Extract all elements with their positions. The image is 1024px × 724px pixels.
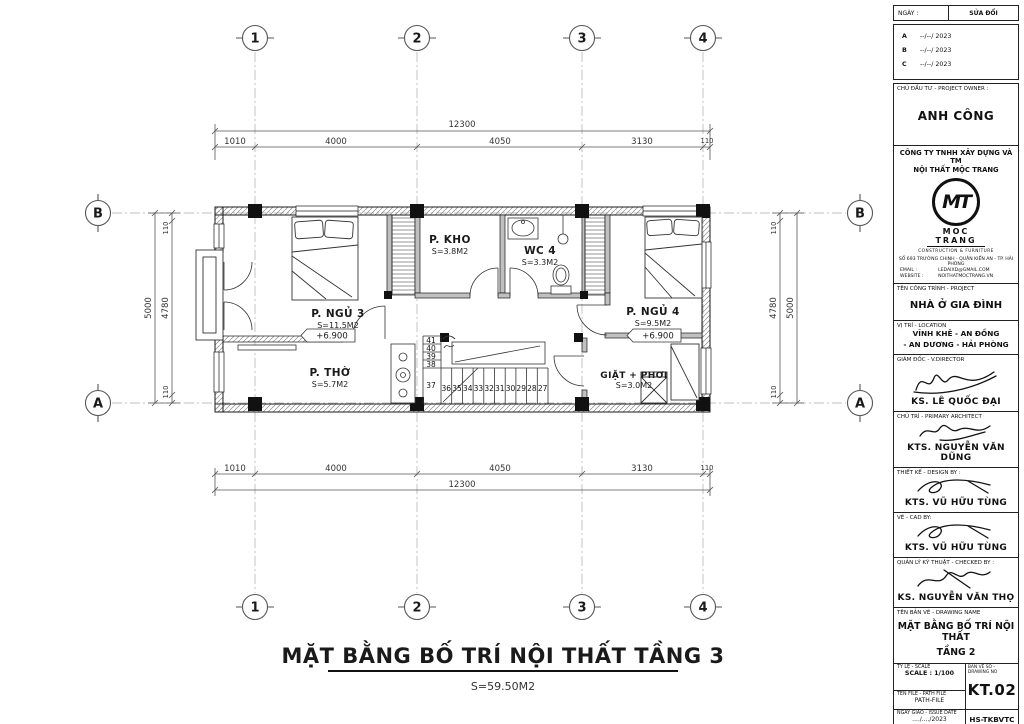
company-logo: MT: [932, 178, 980, 226]
revision-key: B: [902, 47, 910, 54]
dim-label: 110: [770, 386, 778, 399]
revision-change-label: SỬA ĐỔI: [948, 6, 1018, 20]
staircase: [423, 336, 548, 404]
email-label: EMAIL :: [900, 268, 938, 273]
revision-row: B --/--/ 2023: [902, 47, 1010, 54]
stair-number: 30: [506, 384, 516, 393]
room-level-ngu4: +6.900: [642, 332, 673, 342]
dim-label: 1010: [224, 464, 246, 474]
signer-label: THIẾT KẾ - DESIGN BY :: [894, 468, 1018, 477]
stair-number: 31: [495, 384, 505, 393]
grid-bubble-Br: B: [855, 207, 865, 222]
drawing-name-label: TÊN BẢN VẼ - DRAWING NAME: [894, 608, 1018, 617]
room-area-kho: S=3.8M2: [432, 247, 469, 256]
project-label: TÊN CÔNG TRÌNH - PROJECT: [894, 284, 1018, 293]
plan-title-group: MẶT BẰNG BỐ TRÍ NỘI THẤT TẦNG 3 S=59.50M…: [281, 640, 724, 693]
title-block: NGÀY : SỬA ĐỔI A --/--/ 2023 B --/--/ 20…: [893, 6, 1019, 724]
dimension-labels: 12300 1010 4000 4050 3130 110 1010 4000 …: [144, 120, 796, 490]
dim-overall-bottom: 12300: [448, 480, 475, 490]
dim-label: 4780: [769, 297, 779, 319]
website-value: NOITHATMOCTRANG.VN: [938, 274, 993, 279]
signer-checker: QUẢN LÝ KỸ THUẬT - CHECKED BY : KS. NGUY…: [893, 557, 1019, 609]
signer-designer: THIẾT KẾ - DESIGN BY : KTS. VŨ HỮU TÙNG: [893, 467, 1019, 513]
revision-table: A --/--/ 2023 B --/--/ 2023 C --/--/ 202…: [893, 24, 1019, 80]
signature-designer: [906, 477, 1006, 497]
drawing-no-value: KT.02: [966, 681, 1018, 699]
issue-date-value: ..../..../2023: [894, 716, 965, 723]
stair-number: 33: [474, 384, 484, 393]
signer-label: QUẢN LÝ KỸ THUẬT - CHECKED BY :: [894, 558, 1018, 567]
room-area-giat: S=3.0M2: [616, 381, 653, 390]
grid-bubble-Ar: A: [855, 397, 865, 412]
grid-bubble-1b: 1: [250, 601, 259, 616]
company-section: CÔNG TY TNHH XÂY DỰNG VÀ TM NỘI THẤT MỘC…: [893, 145, 1019, 284]
dim-label: 4000: [325, 137, 347, 147]
grid-bubble-2: 2: [412, 32, 421, 47]
dim-overall-top: 12300: [448, 120, 475, 130]
footer-section: TỶ LỆ - SCALE SCALE : 1/100 BẢN VẼ SỐ - …: [893, 663, 1019, 724]
dim-label: 5000: [786, 297, 796, 319]
owner-section: CHỦ ĐẦU TƯ - PROJECT OWNER : ANH CÔNG: [893, 83, 1019, 146]
stair-number: 34: [463, 384, 473, 393]
signature-cad: [906, 522, 1006, 542]
room-name-kho: P. KHO: [429, 234, 471, 246]
revision-date: --/--/ 2023: [920, 33, 951, 40]
signer-cad: VẼ - CAD BY: KTS. VŨ HỮU TÙNG: [893, 512, 1019, 558]
dim-label: 110: [701, 137, 714, 145]
revision-key: C: [902, 61, 910, 68]
dim-label: 110: [162, 222, 170, 235]
location-line1: VĨNH KHÊ - AN ĐỒNG: [894, 329, 1018, 340]
signer-name: KS. NGUYỄN VĂN THỌ: [894, 593, 1018, 603]
stair-number: 27: [538, 384, 548, 393]
room-level-ngu3: +6.900: [316, 332, 347, 342]
company-name-line1: CÔNG TY TNHH XÂY DỰNG VÀ TM: [894, 149, 1018, 167]
room-name-giat: GIẶT + PHƠI: [600, 370, 667, 381]
company-logo-text: MT: [942, 191, 970, 213]
project-section: TÊN CÔNG TRÌNH - PROJECT NHÀ Ở GIA ĐÌNH: [893, 283, 1019, 321]
plan-total-area: S=59.50M2: [471, 680, 535, 693]
room-area-wc4: S=3.3M2: [522, 258, 559, 267]
signer-label: GIÁM ĐỐC - V.DIRECTOR: [894, 355, 1018, 364]
grid-bubble-4b: 4: [698, 601, 707, 616]
stair-number: 35: [452, 384, 462, 393]
drawing-no-label: BẢN VẼ SỐ - DRAWING NO: [966, 664, 1018, 675]
dim-label: 4050: [489, 464, 511, 474]
drawing-name-line2: TẦNG 2: [894, 647, 1018, 663]
room-name-wc4: WC 4: [524, 245, 556, 257]
company-website-row: WEBSITE : NOITHATMOCTRANG.VN: [894, 273, 1018, 283]
project-name: NHÀ Ở GIA ĐÌNH: [894, 300, 1018, 311]
signature-director: [906, 364, 1006, 396]
signer-label: VẼ - CAD BY:: [894, 513, 1018, 522]
stair-number: 32: [484, 384, 494, 393]
room-name-ngu3: P. NGỦ 3: [311, 306, 365, 320]
signer-name: KTS. NGUYỄN VĂN DŨNG: [894, 443, 1018, 463]
dim-label: 110: [770, 222, 778, 235]
revision-date: --/--/ 2023: [920, 61, 951, 68]
bay-window: [196, 250, 223, 340]
plan-title: MẶT BẰNG BỐ TRÍ NỘI THẤT TẦNG 3: [281, 640, 724, 668]
owner-name: ANH CÔNG: [894, 109, 1018, 123]
grid-bubble-A: A: [93, 397, 103, 412]
room-area-ngu4: S=9.5M2: [635, 319, 672, 328]
revision-date: --/--/ 2023: [920, 47, 951, 54]
owner-label: CHỦ ĐẦU TƯ - PROJECT OWNER :: [894, 84, 1018, 93]
room-name-tho: P. THỜ: [310, 366, 351, 379]
revision-header: NGÀY : SỬA ĐỔI: [893, 5, 1019, 21]
stair-number: 37: [426, 381, 436, 390]
signature-checker: [906, 566, 1006, 592]
signer-name: KTS. VŨ HỮU TÙNG: [894, 498, 1018, 508]
website-label: WEBSITE :: [900, 274, 938, 279]
bed-ngu3: [292, 217, 358, 300]
location-line2: - AN DƯƠNG - HẢI PHÒNG: [894, 340, 1018, 354]
drawing-name-line1: MẶT BẰNG BỐ TRÍ NỘI THẤT: [894, 621, 1018, 643]
signer-name: KS. LÊ QUỐC ĐẠI: [894, 397, 1018, 407]
grid-bubble-1: 1: [250, 32, 259, 47]
location-section: VỊ TRÍ - LOCATION VĨNH KHÊ - AN ĐỒNG - A…: [893, 320, 1019, 355]
company-address: SỐ 693 TRƯỜNG CHINH - QUẬN KIẾN AN - TP.…: [894, 257, 1018, 267]
dim-label: 4050: [489, 137, 511, 147]
room-area-tho: S=5.7M2: [312, 380, 349, 389]
dim-label: 110: [162, 386, 170, 399]
signer-label: CHỦ TRÌ - PRIMARY ARCHITECT: [894, 412, 1018, 421]
dim-label: 1010: [224, 137, 246, 147]
stair-number: 28: [527, 384, 537, 393]
grid-bubble-4: 4: [698, 32, 707, 47]
revision-date-label: NGÀY :: [894, 10, 948, 17]
grid-bubble-3b: 3: [577, 601, 586, 616]
dim-label: 4000: [325, 464, 347, 474]
dim-label: 5000: [144, 297, 154, 319]
scale-cell: TỶ LỆ - SCALE SCALE : 1/100: [894, 664, 966, 691]
revision-row: A --/--/ 2023: [902, 33, 1010, 40]
signature-architect: [906, 420, 1006, 442]
dim-label: 110: [701, 464, 714, 472]
revision-row: C --/--/ 2023: [902, 61, 1010, 68]
dim-label: 3130: [631, 464, 653, 474]
stair-number: 38: [426, 360, 436, 369]
floor-plan: 1 2 3 4 1 2 3 4 B A B A 12300 1010 4000: [0, 0, 893, 724]
signer-name: KTS. VŨ HỮU TÙNG: [894, 543, 1018, 553]
dim-label: 3130: [631, 137, 653, 147]
stair-number: 36: [442, 384, 452, 393]
file-cell: TÊN FILE - PATH FILE PATH-FILE: [894, 691, 966, 710]
company-logo-name: MOC TRANG: [927, 227, 985, 247]
drawing-sheet: 1 2 3 4 1 2 3 4 B A B A 12300 1010 4000: [0, 0, 1024, 724]
room-name-ngu4: P. NGỦ 4: [626, 304, 680, 318]
location-label: VỊ TRÍ - LOCATION: [894, 321, 1018, 330]
revision-key: A: [902, 33, 910, 40]
grid-bubble-B: B: [93, 207, 103, 222]
document-code: HS-TKBVTC: [966, 710, 1018, 724]
date-cell: NGÀY GIAO - ISSUE DATE ..../..../2023: [894, 710, 966, 724]
stair-number: 29: [516, 384, 526, 393]
email-value: LEDAIXD@GMAIL.COM: [938, 268, 990, 273]
drawing-no-cell: BẢN VẼ SỐ - DRAWING NO KT.02: [966, 664, 1018, 710]
grid-bubble-3: 3: [577, 32, 586, 47]
drawing-name-section: TÊN BẢN VẼ - DRAWING NAME MẶT BẰNG BỐ TR…: [893, 607, 1019, 664]
company-name-line2: NỘI THẤT MỘC TRANG: [894, 166, 1018, 175]
company-logo-subtitle: CONSTRUCTION & FURNITURE: [894, 248, 1018, 253]
dim-label: 4780: [161, 297, 171, 319]
scale-value: SCALE : 1/100: [894, 670, 965, 677]
signer-architect: CHỦ TRÌ - PRIMARY ARCHITECT KTS. NGUYỄN …: [893, 411, 1019, 469]
bed-ngu4: [645, 217, 702, 298]
grid-bubble-2b: 2: [412, 601, 421, 616]
file-value: PATH-FILE: [894, 697, 965, 704]
signer-director: GIÁM ĐỐC - V.DIRECTOR KS. LÊ QUỐC ĐẠI: [893, 354, 1019, 412]
